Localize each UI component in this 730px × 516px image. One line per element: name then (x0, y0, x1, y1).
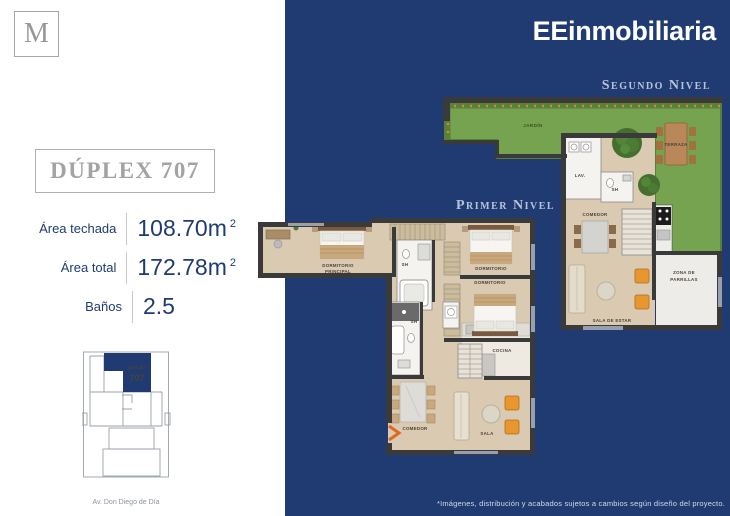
spec-label: Área total (16, 260, 126, 275)
sofa (454, 392, 469, 440)
coffee-table (482, 405, 500, 423)
window (583, 326, 623, 330)
bathroom (388, 302, 420, 375)
room-label-dormitorio-principal-1: DORMITORIO (322, 263, 354, 268)
spec-row-banos: Baños 2.5 (16, 287, 236, 326)
bed (472, 294, 518, 336)
brand-name: EEinmobiliaria (533, 16, 716, 47)
floor-plan-first-level: DORMITORIO PRINCIPAL DORMITORIO DORMITOR… (258, 218, 535, 455)
spec-divider (126, 213, 127, 245)
tree-icon (612, 128, 642, 158)
room-label-sh-2: SH (411, 319, 418, 324)
armchair (635, 295, 649, 309)
bathroom (397, 240, 432, 310)
spec-value-text: 108.70m (137, 215, 227, 241)
street-caption: Av. Don Diego de Día (46, 499, 206, 506)
spec-value-sup: 2 (230, 257, 236, 269)
window (454, 451, 498, 454)
spec-row-area-total: Área total 172.78m2 (16, 248, 236, 287)
window (531, 398, 535, 428)
spec-divider (126, 252, 127, 284)
brand-monogram: M (24, 18, 49, 50)
unit-title: DÚPLEX 707 (50, 158, 200, 184)
room-label-comedor: COMEDOR (402, 426, 428, 431)
spec-label: Baños (16, 299, 132, 314)
tree-icon (638, 174, 660, 196)
spec-value: 108.70m2 (137, 215, 236, 242)
unit-title-box: DÚPLEX 707 (35, 149, 215, 193)
room-label-sala-de-estar: SALA DE ESTAR (593, 318, 632, 323)
spec-value-sup: 2 (230, 218, 236, 230)
grill-zone-floor (656, 255, 722, 330)
room-label-zona-parrillas-1: ZONA DE (673, 270, 695, 275)
armchair (505, 420, 519, 434)
window (288, 223, 324, 226)
armchair (505, 396, 519, 410)
sofa (569, 265, 585, 313)
unit-specs: Área techada 108.70m2 Área total 172.78m… (16, 209, 236, 326)
stairs (458, 344, 482, 378)
spec-value: 172.78m2 (137, 254, 236, 281)
room-label-zona-parrillas-2: PARRILLAS (670, 277, 698, 282)
minimap-unit-label-line2: 707 (129, 373, 144, 383)
room-label-dormitorio-1: DORMITORIO (475, 266, 507, 271)
room-label-sh-1: SH (402, 262, 409, 267)
window (531, 306, 535, 332)
window (718, 277, 722, 307)
spec-value: 2.5 (143, 293, 178, 320)
room-label-sala: SALA (480, 431, 494, 436)
window (531, 244, 535, 270)
spec-row-area-techada: Área techada 108.70m2 (16, 209, 236, 248)
dining-table (391, 382, 435, 423)
spec-value-text: 172.78m (137, 254, 227, 280)
room-label-terraza: TERRAZA (664, 142, 688, 147)
minimap-unit-label-line1: DÚPLEX (128, 364, 148, 370)
brochure-page: M DÚPLEX 707 Área techada 108.70m2 Área … (0, 0, 730, 516)
laundry-closet (443, 302, 459, 328)
armchair (635, 269, 649, 283)
second-level-title: Segundo Nivel (602, 78, 711, 94)
spec-divider (132, 291, 133, 323)
bed (312, 226, 372, 259)
room-label-comedor: COMEDOR (582, 212, 608, 217)
room-label-lav: LAV. (575, 173, 585, 178)
disclaimer-text: *Imágenes, distribución y acabados sujet… (437, 499, 725, 508)
room-label-sh: SH (612, 187, 619, 192)
room-label-dormitorio-principal-2: PRINCIPAL (325, 269, 351, 274)
room-label-jardin: JARDÍN (523, 121, 543, 128)
stairs (622, 209, 652, 255)
site-plan-minimap: DÚPLEX 707 (82, 351, 172, 481)
stove-icon (656, 207, 671, 225)
coffee-table (597, 282, 615, 300)
room-label-dormitorio-2: DORMITORIO (474, 280, 506, 285)
sink-icon (657, 230, 670, 240)
brand-monogram-logo: M (14, 11, 59, 57)
room-label-cocina: COCINA (492, 348, 512, 353)
bed (462, 225, 520, 264)
spec-label: Área techada (16, 221, 126, 236)
spec-value-text: 2.5 (143, 293, 175, 319)
